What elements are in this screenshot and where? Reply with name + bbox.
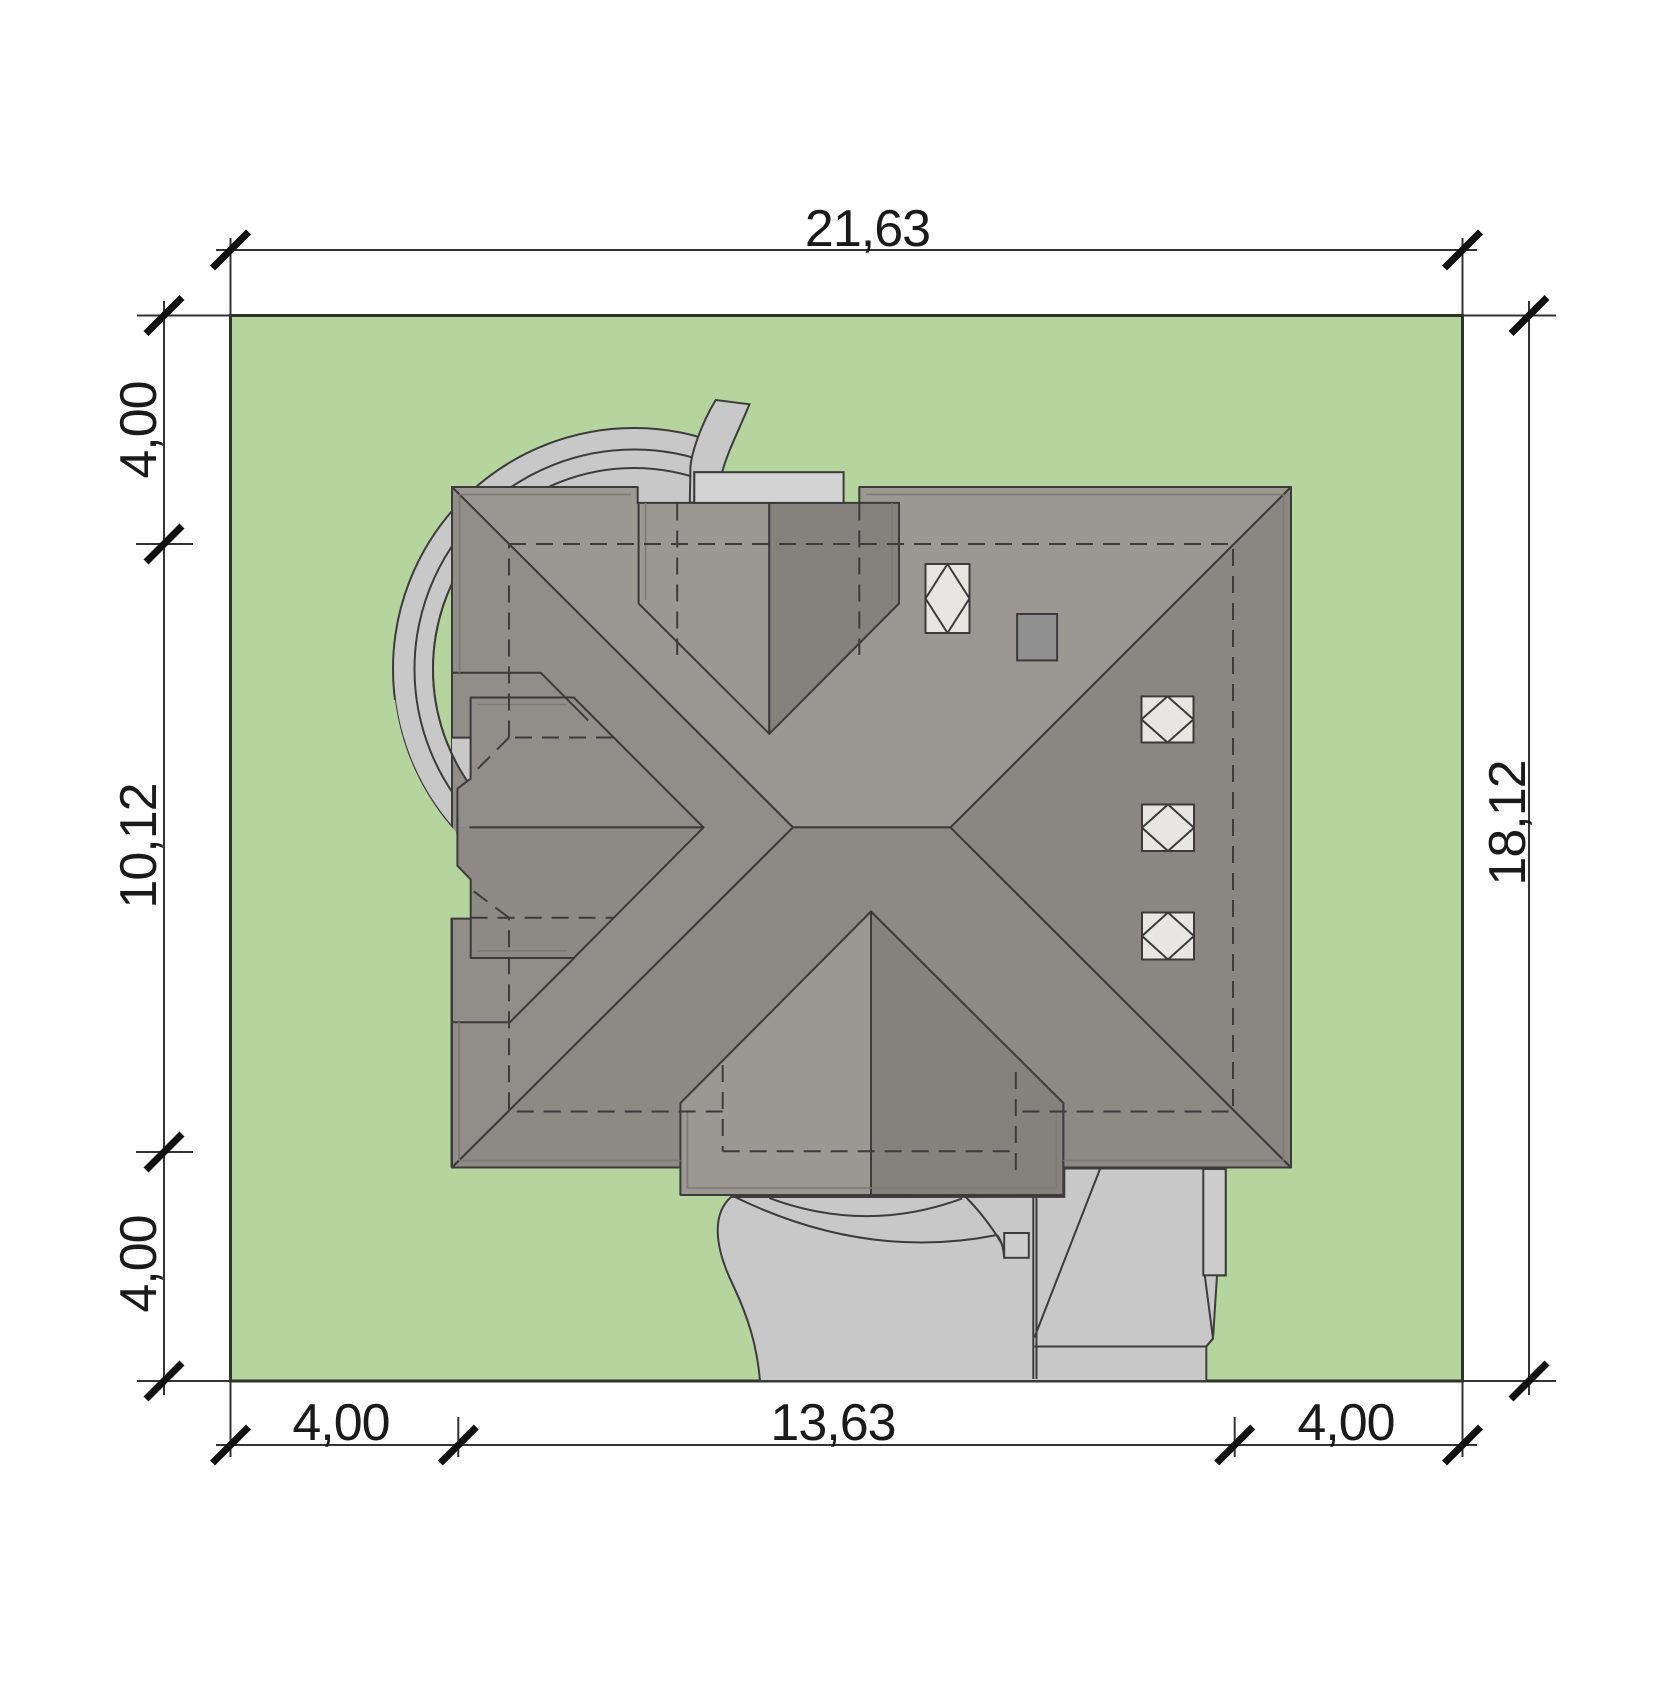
svg-text:4,00: 4,00 <box>110 1215 168 1312</box>
svg-text:18,12: 18,12 <box>1479 760 1537 885</box>
svg-text:4,00: 4,00 <box>292 1394 389 1452</box>
svg-text:10,12: 10,12 <box>110 783 168 908</box>
svg-text:4,00: 4,00 <box>1297 1394 1394 1452</box>
svg-text:21,63: 21,63 <box>805 200 930 258</box>
svg-text:13,63: 13,63 <box>770 1394 895 1452</box>
svg-text:4,00: 4,00 <box>110 381 168 478</box>
